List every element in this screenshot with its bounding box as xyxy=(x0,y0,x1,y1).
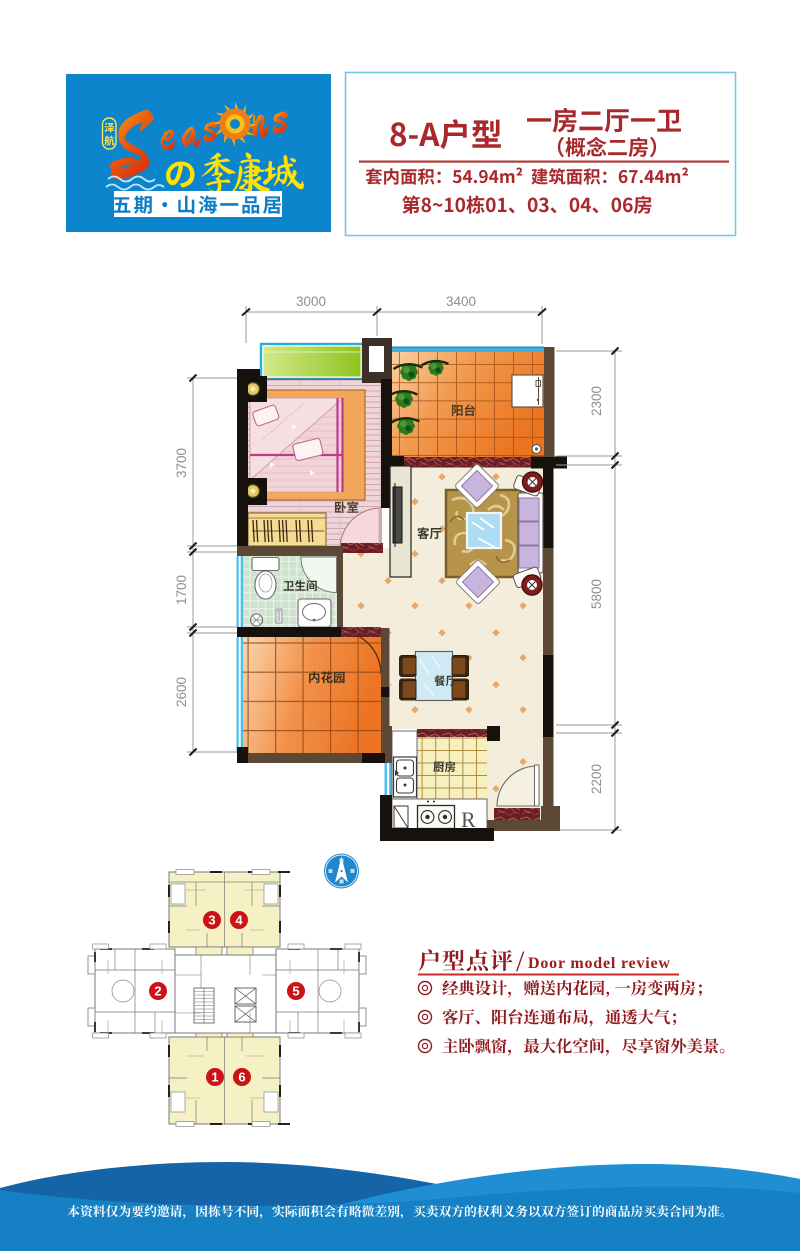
svg-text:2200: 2200 xyxy=(589,764,604,794)
svg-text:3400: 3400 xyxy=(446,294,476,309)
svg-text:6: 6 xyxy=(238,1070,245,1085)
svg-text:1: 1 xyxy=(211,1070,218,1085)
svg-text:3: 3 xyxy=(208,913,215,928)
svg-text:3700: 3700 xyxy=(174,448,189,478)
svg-text:2: 2 xyxy=(154,984,161,999)
svg-text:4: 4 xyxy=(235,913,243,928)
svg-text:/: / xyxy=(516,945,525,978)
svg-text:2300: 2300 xyxy=(589,386,604,416)
svg-text:3000: 3000 xyxy=(296,294,326,309)
svg-text:5800: 5800 xyxy=(589,579,604,609)
svg-text:2600: 2600 xyxy=(174,677,189,707)
svg-text:1700: 1700 xyxy=(174,575,189,605)
svg-text:Door model review: Door model review xyxy=(528,955,671,972)
svg-text:5: 5 xyxy=(292,984,299,999)
